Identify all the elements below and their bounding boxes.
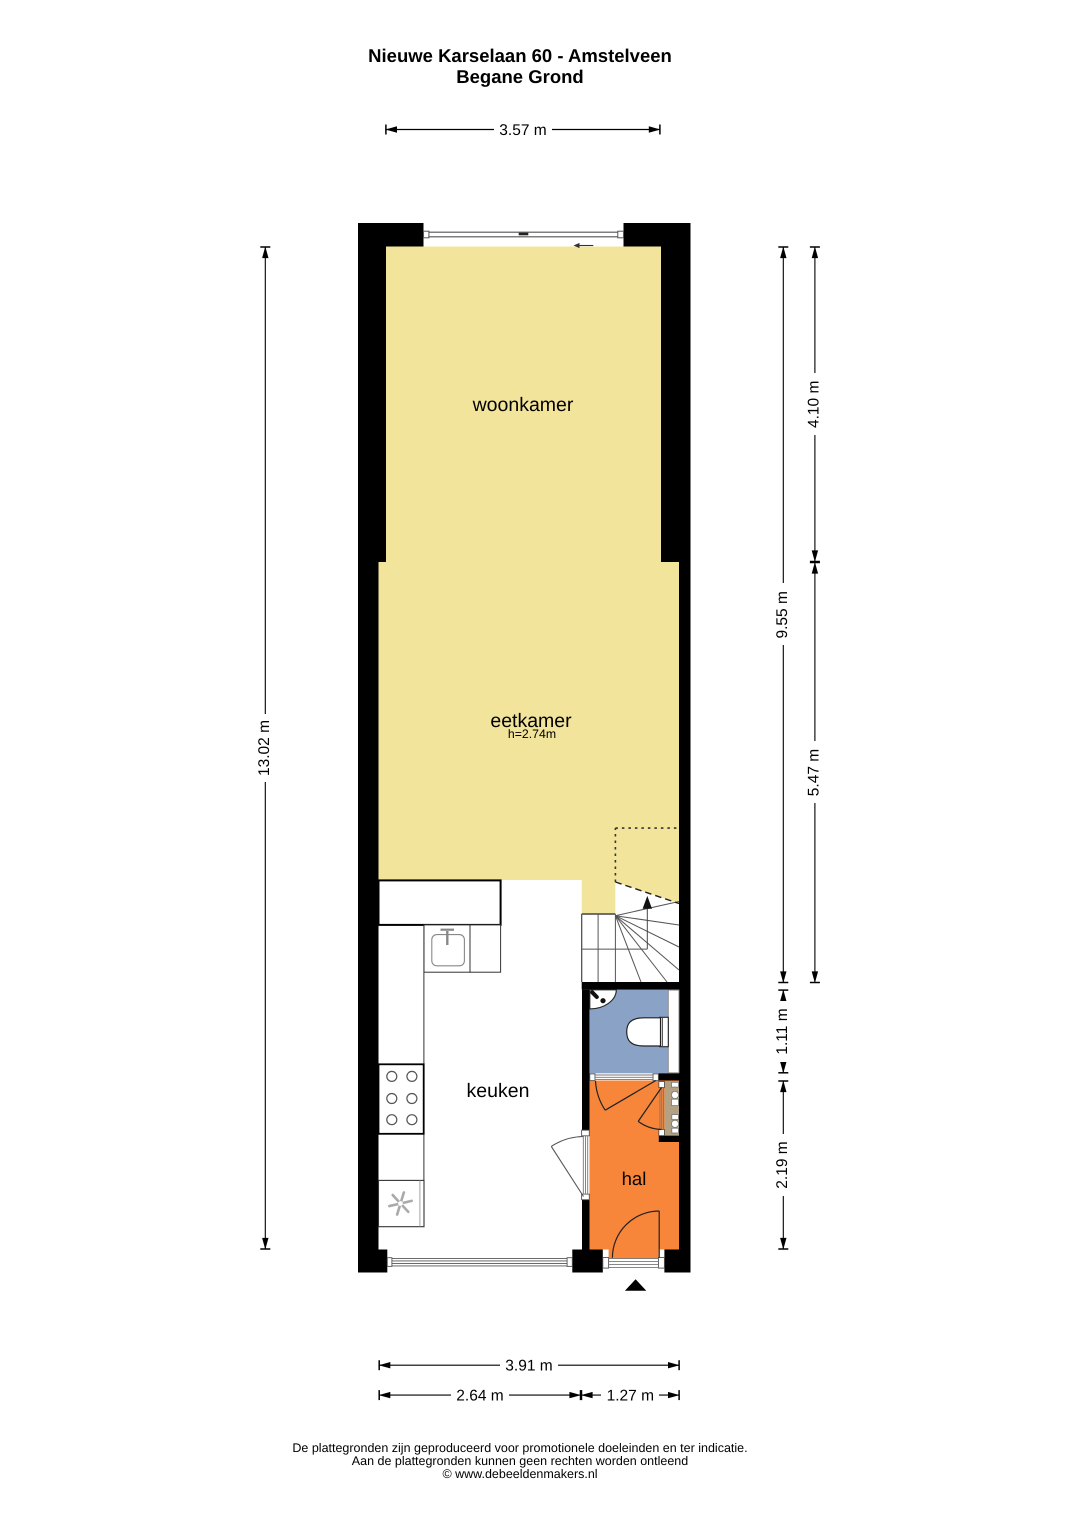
svg-text:woonkamer: woonkamer — [472, 394, 574, 416]
svg-text:h=2.74m: h=2.74m — [508, 727, 556, 741]
svg-text:5.47 m: 5.47 m — [806, 749, 823, 796]
svg-text:© www.debeeldenmakers.nl: © www.debeeldenmakers.nl — [442, 1467, 597, 1481]
svg-text:2.19 m: 2.19 m — [774, 1141, 791, 1188]
svg-text:De plattegronden zijn geproduc: De plattegronden zijn geproduceerd voor … — [292, 1441, 747, 1455]
svg-text:keuken: keuken — [467, 1080, 530, 1102]
svg-text:Nieuwe Karselaan 60 - Amstelve: Nieuwe Karselaan 60 - Amstelveen — [368, 45, 672, 66]
svg-text:Begane Grond: Begane Grond — [456, 66, 583, 87]
svg-text:3.91 m: 3.91 m — [505, 1358, 552, 1375]
svg-text:Aan de plattegronden kunnen ge: Aan de plattegronden kunnen geen rechten… — [352, 1454, 688, 1468]
svg-text:1.11 m: 1.11 m — [774, 1008, 791, 1054]
svg-text:hal: hal — [622, 1168, 647, 1189]
svg-text:4.10 m: 4.10 m — [806, 381, 823, 428]
svg-text:2.64 m: 2.64 m — [456, 1388, 503, 1405]
svg-text:3.57 m: 3.57 m — [499, 122, 546, 139]
svg-text:1.27 m: 1.27 m — [607, 1388, 654, 1405]
svg-text:13.02 m: 13.02 m — [256, 720, 273, 776]
svg-text:9.55 m: 9.55 m — [774, 591, 791, 638]
